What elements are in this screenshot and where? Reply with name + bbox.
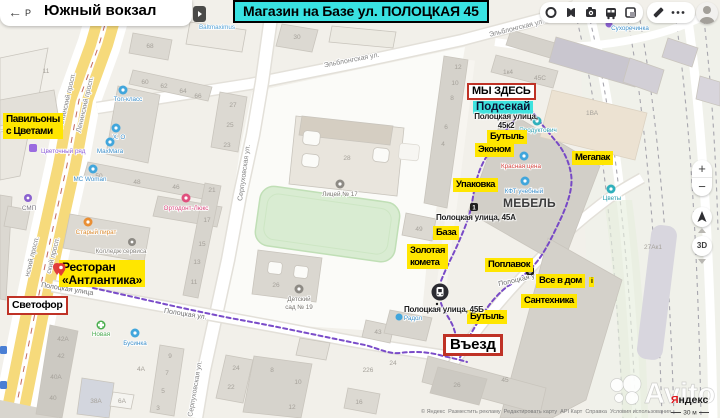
svg-text:66: 66 [194, 93, 202, 100]
svg-text:Цветочный ряд: Цветочный ряд [41, 147, 86, 155]
svg-text:сад № 19: сад № 19 [285, 304, 313, 311]
svg-text:Красная цена: Красная цена [501, 163, 541, 170]
svg-text:Ортодонт-Люкс: Ортодонт-Люкс [164, 205, 209, 212]
svg-text:15: 15 [198, 241, 206, 248]
svg-text:5: 5 [161, 388, 165, 395]
svg-text:Х. О: Х. О [113, 134, 126, 141]
svg-text:7: 7 [165, 370, 169, 377]
svg-text:30 м: 30 м [683, 410, 697, 417]
svg-text:Детский: Детский [287, 295, 311, 303]
svg-text:4: 4 [441, 141, 445, 148]
svg-text:6А: 6А [118, 398, 127, 405]
svg-text:23: 23 [223, 142, 231, 149]
svg-text:40А: 40А [50, 374, 62, 381]
svg-text:3: 3 [156, 405, 160, 412]
svg-text:MC Woman: MC Woman [73, 176, 107, 183]
svg-text:Сухоречинка: Сухоречинка [611, 25, 649, 32]
svg-text:40: 40 [49, 395, 57, 402]
svg-text:Колледж сервиса: Колледж сервиса [95, 248, 147, 255]
svg-text:30: 30 [293, 34, 301, 41]
svg-text:24: 24 [389, 360, 397, 367]
svg-text:42А: 42А [57, 336, 69, 343]
svg-text:12: 12 [288, 404, 296, 411]
svg-text:10: 10 [294, 379, 302, 386]
svg-text:Топ-класс: Топ-класс [114, 96, 143, 103]
svg-text:21: 21 [208, 187, 216, 194]
svg-text:17: 17 [203, 217, 211, 224]
svg-text:6: 6 [444, 124, 448, 131]
svg-text:СМП: СМП [22, 205, 37, 212]
svg-text:45: 45 [501, 377, 509, 384]
svg-text:28: 28 [343, 155, 351, 162]
svg-text:16: 16 [355, 399, 363, 406]
svg-text:13: 13 [193, 259, 201, 266]
svg-text:10: 10 [451, 80, 459, 87]
svg-text:26: 26 [453, 382, 461, 389]
svg-text:Радол: Радол [404, 315, 423, 322]
svg-text:1ВА: 1ВА [586, 110, 599, 117]
svg-text:27Ак1: 27Ак1 [644, 244, 662, 251]
svg-text:4А: 4А [137, 366, 146, 373]
svg-text:Старый пират: Старый пират [76, 228, 117, 236]
svg-text:Новая: Новая [92, 331, 110, 338]
svg-text:11: 11 [191, 279, 198, 286]
svg-text:25: 25 [226, 122, 234, 129]
svg-text:12: 12 [454, 64, 462, 71]
svg-text:9: 9 [168, 353, 172, 360]
svg-text:45С: 45С [534, 75, 546, 82]
svg-text:60: 60 [141, 79, 149, 86]
svg-text:КФТ учебный: КФТ учебный [505, 187, 544, 195]
svg-text:22: 22 [227, 384, 235, 391]
svg-text:8: 8 [270, 367, 274, 374]
svg-text:26: 26 [272, 282, 280, 289]
svg-text:42: 42 [57, 353, 65, 360]
svg-text:49: 49 [415, 226, 423, 233]
svg-text:MaxMara: MaxMara [97, 148, 124, 155]
svg-text:11: 11 [43, 68, 50, 75]
svg-text:46: 46 [172, 184, 180, 191]
svg-text:8: 8 [450, 95, 454, 102]
svg-text:62: 62 [160, 83, 168, 90]
svg-text:Лицей № 17: Лицей № 17 [322, 190, 358, 198]
svg-text:24: 24 [232, 365, 240, 372]
svg-text:38А: 38А [90, 398, 102, 405]
svg-text:Цветы: Цветы [603, 195, 622, 202]
svg-text:64: 64 [179, 88, 187, 95]
svg-text:27: 27 [229, 102, 237, 109]
svg-text:48: 48 [133, 179, 141, 186]
svg-text:Бусинка: Бусинка [123, 340, 147, 347]
svg-text:68: 68 [146, 43, 154, 50]
svg-text:1к4: 1к4 [503, 69, 513, 76]
svg-text:Baltmaximus: Baltmaximus [199, 24, 235, 31]
svg-text:226: 226 [363, 367, 374, 374]
svg-text:43: 43 [374, 329, 382, 336]
